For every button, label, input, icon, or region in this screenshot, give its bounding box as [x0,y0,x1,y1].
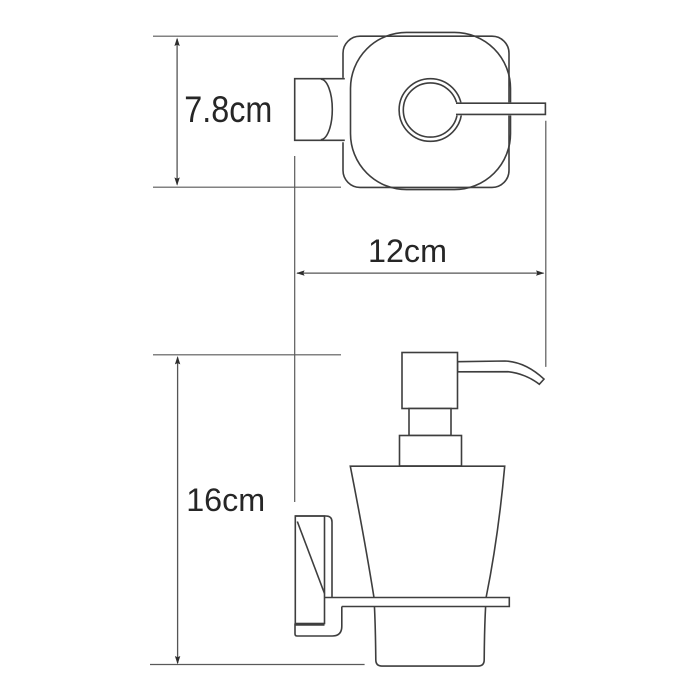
svg-text:7.8cm: 7.8cm [184,88,272,130]
svg-text:16cm: 16cm [186,482,265,518]
svg-text:12cm: 12cm [368,233,447,269]
